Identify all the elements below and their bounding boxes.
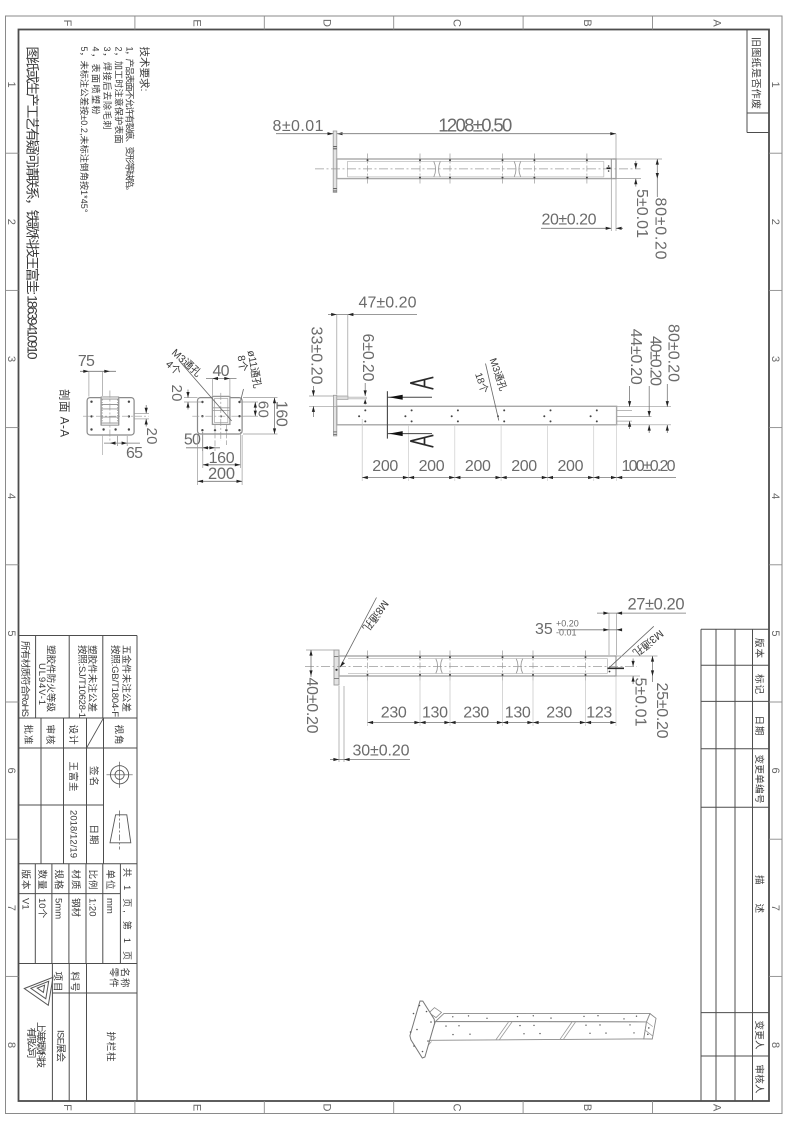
svg-text:C: C	[451, 1104, 463, 1112]
svg-text:33±0.20: 33±0.20	[308, 327, 325, 385]
svg-text:5±0.01: 5±0.01	[631, 678, 648, 727]
svg-text:4: 4	[769, 493, 781, 499]
svg-text:按照:SJ/T10628-1: 按照:SJ/T10628-1	[76, 645, 88, 718]
svg-text:图纸或生产工艺有疑问请联系，铁歌科技王富圭: 1863941: 图纸或生产工艺有疑问请联系，铁歌科技王富圭: 18639410910	[25, 47, 41, 360]
svg-text:30±0.20: 30±0.20	[353, 743, 410, 760]
svg-text:25±0.20: 25±0.20	[653, 683, 670, 739]
svg-text:60: 60	[254, 401, 271, 418]
svg-text:料号: 料号	[68, 972, 80, 992]
svg-text:塑胶件未注公差: 塑胶件未注公差	[86, 645, 98, 712]
svg-text:200: 200	[511, 458, 537, 475]
svg-text:5，未标注公差按±0.2,未标注倒角按1*45°: 5，未标注公差按±0.2,未标注倒角按1*45°	[79, 47, 90, 213]
svg-text:批准: 批准	[22, 725, 34, 745]
svg-text:6: 6	[5, 768, 17, 774]
svg-text:200: 200	[558, 458, 584, 475]
svg-text:按照:GB/T1804-F: 按照:GB/T1804-F	[109, 645, 121, 717]
svg-text:1: 1	[769, 82, 781, 88]
svg-text:旧图纸是否作废: 旧图纸是否作废	[750, 37, 763, 109]
svg-text:E: E	[191, 19, 203, 26]
svg-text:UL94V-1: UL94V-1	[36, 663, 47, 705]
svg-text:设计: 设计	[67, 725, 79, 745]
svg-text:E: E	[191, 1104, 203, 1111]
svg-text:4: 4	[5, 493, 17, 499]
svg-text:20±0.20: 20±0.20	[542, 212, 597, 229]
svg-text:6±0.20: 6±0.20	[359, 334, 376, 382]
svg-text:7: 7	[769, 905, 781, 911]
svg-text:230: 230	[381, 705, 407, 722]
svg-text:200: 200	[419, 458, 445, 475]
svg-text:2: 2	[5, 219, 17, 225]
svg-text:100±0.20: 100±0.20	[622, 458, 676, 475]
svg-text:B: B	[581, 19, 593, 26]
svg-text:40±0.20: 40±0.20	[646, 336, 663, 386]
svg-text:75: 75	[78, 353, 95, 370]
svg-text:6: 6	[769, 768, 781, 774]
svg-text:比例: 比例	[87, 870, 99, 890]
svg-text:130: 130	[505, 705, 531, 722]
svg-text:护栏柱: 护栏柱	[105, 1032, 117, 1062]
svg-text:47±0.20: 47±0.20	[359, 295, 417, 312]
svg-text:8: 8	[769, 1042, 781, 1048]
svg-text:变更人: 变更人	[753, 1021, 765, 1050]
svg-text:版本: 版本	[753, 638, 765, 658]
svg-text:2: 2	[769, 219, 781, 225]
svg-text:230: 230	[463, 705, 489, 722]
svg-text:200: 200	[465, 458, 491, 475]
svg-text:剖面 A-A: 剖面 A-A	[58, 389, 72, 437]
svg-text:1208±0.50: 1208±0.50	[438, 115, 512, 136]
svg-text:65: 65	[126, 445, 143, 462]
svg-text:80±0.20: 80±0.20	[652, 198, 669, 260]
svg-text:1，产品表面不允许有裂痕、变形等缺陷。: 1，产品表面不允许有裂痕、变形等缺陷。	[125, 47, 136, 196]
svg-text:F: F	[61, 20, 73, 27]
svg-text:C: C	[451, 19, 463, 27]
svg-text:-0.01: -0.01	[556, 628, 577, 638]
svg-text:5: 5	[769, 630, 781, 636]
svg-text:版本: 版本	[19, 870, 31, 890]
svg-text:数量: 数量	[36, 870, 48, 890]
svg-text:2，加工时注意保护表面: 2，加工时注意保护表面	[114, 47, 125, 144]
svg-text:日期: 日期	[753, 716, 764, 736]
svg-text:审核人: 审核人	[753, 1065, 765, 1094]
svg-text:27±0.20: 27±0.20	[628, 596, 685, 614]
svg-text:单位: 单位	[104, 870, 116, 890]
svg-text:名称: 名称	[118, 968, 130, 988]
svg-text:3: 3	[5, 356, 17, 362]
svg-text:B: B	[581, 1104, 593, 1111]
svg-text:1: 1	[5, 82, 17, 88]
svg-text:钢材: 钢材	[70, 898, 82, 918]
svg-text:200: 200	[208, 465, 235, 483]
svg-text:F: F	[61, 1104, 73, 1111]
svg-text:40: 40	[213, 363, 230, 380]
svg-text:20: 20	[143, 428, 160, 445]
svg-text:日期: 日期	[87, 825, 98, 845]
svg-text:ISE展会: ISE展会	[54, 1030, 66, 1062]
svg-text:200: 200	[372, 458, 398, 475]
svg-text:20: 20	[168, 385, 185, 402]
svg-text:3: 3	[769, 356, 781, 362]
svg-text:描 述: 描 述	[753, 875, 765, 913]
svg-text:规格: 规格	[53, 870, 65, 890]
svg-text:35: 35	[535, 621, 553, 638]
svg-text:40±0.20: 40±0.20	[303, 678, 320, 734]
svg-text:有限公司: 有限公司	[25, 1028, 37, 1059]
svg-text:V1: V1	[19, 898, 30, 910]
svg-text:签名: 签名	[87, 766, 99, 786]
svg-text:变更单编号: 变更单编号	[753, 755, 765, 804]
svg-text:44±0.20: 44±0.20	[627, 329, 644, 385]
svg-text:技术要求:: 技术要求:	[138, 47, 151, 92]
svg-text:8: 8	[5, 1042, 17, 1048]
svg-text:8±0.01: 8±0.01	[273, 118, 324, 135]
svg-text:5mm: 5mm	[53, 898, 64, 919]
svg-text:10个: 10个	[36, 898, 47, 919]
svg-text:A: A	[711, 19, 723, 27]
svg-text:5±0.01: 5±0.01	[633, 189, 650, 238]
svg-text:mm: mm	[104, 898, 115, 914]
svg-text:1:20: 1:20	[87, 898, 98, 917]
svg-text:2018/12/19: 2018/12/19	[68, 810, 79, 858]
svg-text:王富圭: 王富圭	[67, 762, 79, 792]
svg-text:五金件未注公差: 五金件未注公差	[120, 645, 132, 712]
svg-text:标记: 标记	[753, 674, 765, 694]
svg-text:零件: 零件	[107, 968, 119, 988]
svg-text:A: A	[711, 1104, 723, 1112]
svg-text:5: 5	[5, 630, 17, 636]
svg-text:审核: 审核	[44, 725, 56, 745]
svg-text:230: 230	[546, 705, 572, 722]
svg-text:所有材质符合RoHS: 所有材质符合RoHS	[19, 641, 31, 717]
svg-text:130: 130	[422, 705, 448, 722]
svg-text:D: D	[321, 19, 333, 27]
svg-text:视角: 视角	[112, 725, 124, 745]
svg-text:3，焊接后去除毛刺: 3，焊接后去除毛刺	[102, 47, 113, 130]
svg-text:材质: 材质	[70, 870, 82, 890]
svg-text:D: D	[321, 1104, 333, 1112]
svg-text:7: 7	[5, 905, 17, 911]
svg-text:项目: 项目	[51, 972, 62, 992]
svg-text:80±0.20: 80±0.20	[665, 324, 682, 382]
svg-text:50: 50	[184, 432, 201, 449]
svg-text:123: 123	[586, 705, 612, 722]
